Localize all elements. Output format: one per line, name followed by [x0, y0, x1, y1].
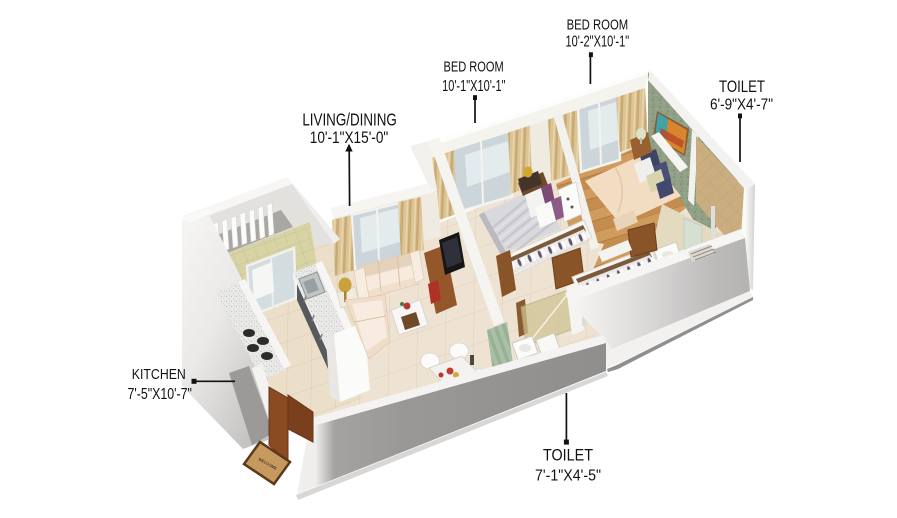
svg-text:BED ROOM: BED ROOM: [444, 58, 504, 75]
svg-text:7'-1"X4'-5": 7'-1"X4'-5": [535, 468, 601, 485]
svg-text:TOILET: TOILET: [543, 447, 593, 465]
svg-text:7'-5"X10'-7": 7'-5"X10'-7": [127, 386, 192, 403]
svg-text:6'-9"X4'-7": 6'-9"X4'-7": [710, 96, 773, 113]
svg-text:10'-2"X10'-1": 10'-2"X10'-1": [565, 34, 629, 51]
svg-text:TOILET: TOILET: [719, 78, 765, 96]
svg-text:KITCHEN: KITCHEN: [132, 366, 186, 383]
svg-text:10'-1"X10'-1": 10'-1"X10'-1": [442, 78, 505, 95]
svg-text:LIVING/DINING: LIVING/DINING: [302, 109, 397, 129]
svg-text:BED ROOM: BED ROOM: [567, 17, 629, 34]
